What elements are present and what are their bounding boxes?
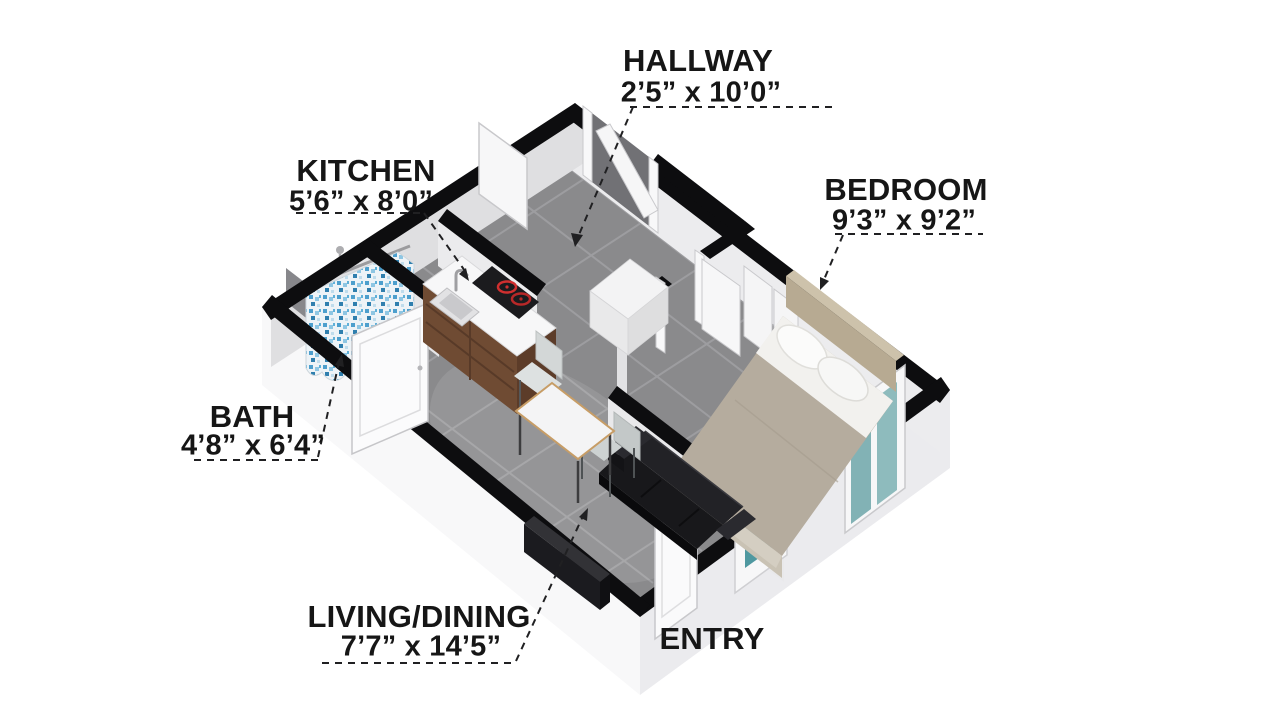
bedroom-leader bbox=[823, 235, 843, 282]
floor-plan-svg bbox=[0, 0, 1280, 720]
floor-plan-figure: HALLWAY 2’5” x 10’0” KITCHEN 5’6” x 8’0”… bbox=[0, 0, 1280, 720]
